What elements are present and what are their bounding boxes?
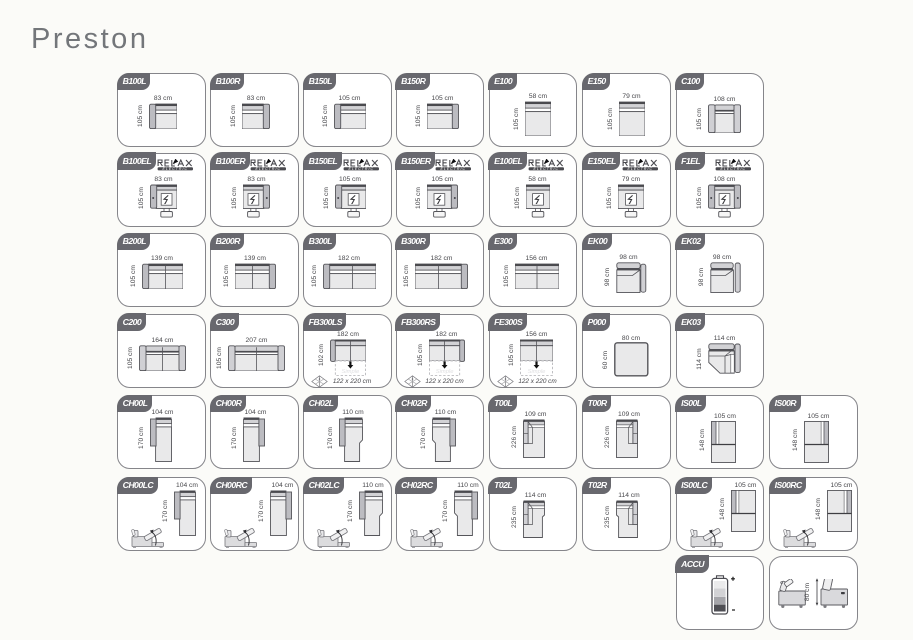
svg-text:ELECTRIC: ELECTRIC bbox=[627, 167, 653, 171]
svg-text:Simple: Simple bbox=[342, 369, 360, 375]
svg-text:ELECTRIC: ELECTRIC bbox=[255, 167, 281, 171]
svg-text:Simple: Simple bbox=[435, 369, 453, 375]
svg-text:ELECTRIC: ELECTRIC bbox=[534, 167, 560, 171]
svg-text:ELECTRIC: ELECTRIC bbox=[348, 167, 374, 171]
svg-text:Simple: Simple bbox=[528, 369, 546, 375]
svg-text:ELECTRIC: ELECTRIC bbox=[162, 167, 188, 171]
svg-text:ELECTRIC: ELECTRIC bbox=[441, 167, 467, 171]
svg-text:ELECTRIC: ELECTRIC bbox=[721, 167, 747, 171]
